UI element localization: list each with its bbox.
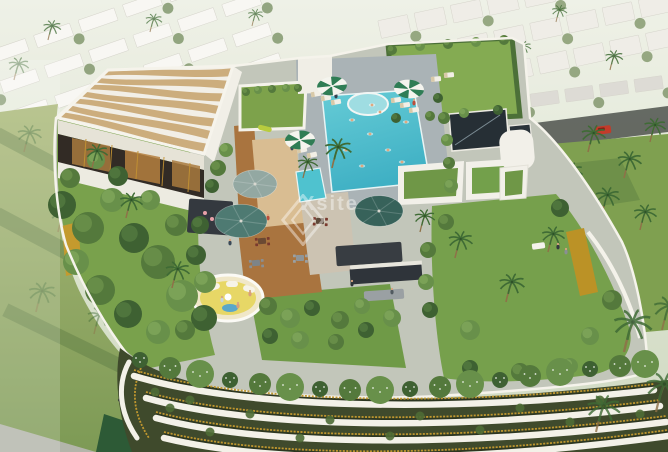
property-render-image: Xsite <box>0 0 668 452</box>
curved-white-structure <box>498 129 535 172</box>
sun-lounger <box>444 72 454 78</box>
patio-umbrella-icon <box>215 204 267 237</box>
patio-umbrella-icon <box>355 196 403 227</box>
sun-lounger <box>431 76 441 82</box>
plunge-pool <box>296 168 326 202</box>
kids-pool <box>222 304 238 312</box>
patio-umbrella-icon <box>233 170 277 198</box>
render-scene <box>0 0 668 452</box>
